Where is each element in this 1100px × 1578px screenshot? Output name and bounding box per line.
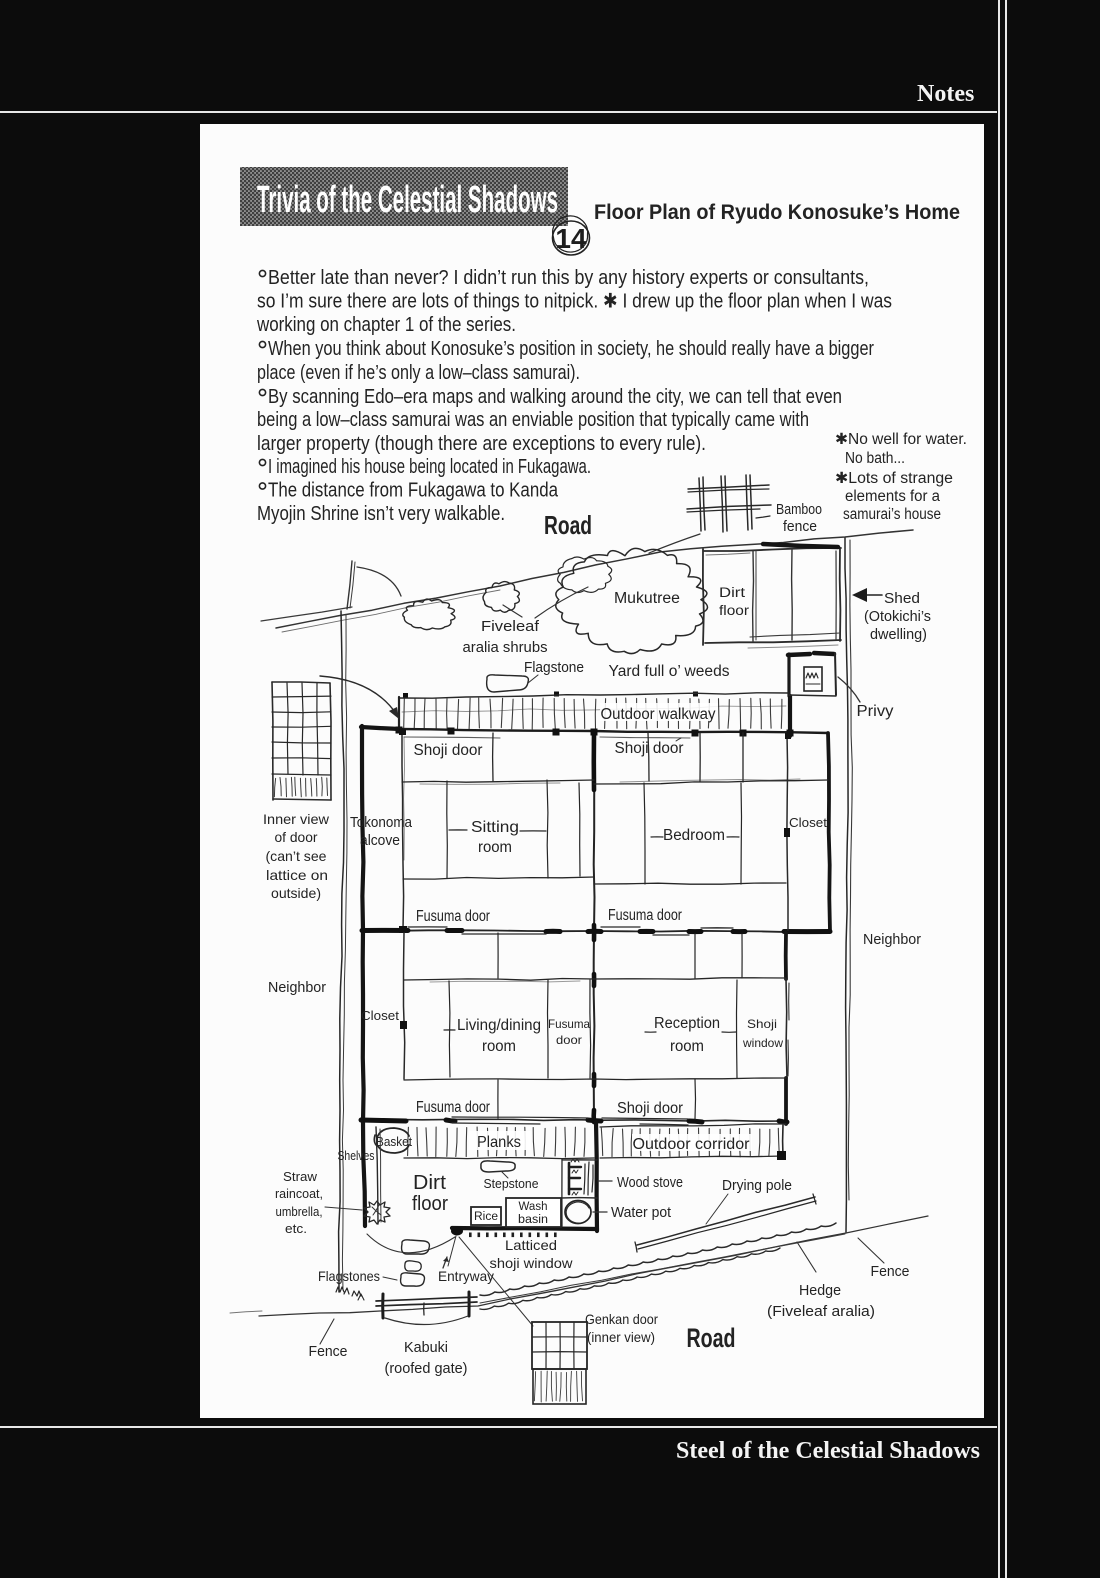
- svg-text:Kabuki: Kabuki: [404, 1339, 448, 1356]
- svg-text:Straw: Straw: [283, 1170, 318, 1184]
- svg-text:Shoji door: Shoji door: [617, 1100, 683, 1117]
- svg-text:raincoat,: raincoat,: [275, 1187, 323, 1201]
- svg-text:larger property (though there: larger property (though there are except…: [257, 433, 706, 455]
- svg-text:alcove: alcove: [360, 833, 400, 849]
- svg-text:room: room: [482, 1038, 516, 1055]
- svg-text:Shoji: Shoji: [747, 1017, 777, 1031]
- svg-text:By scanning Edo–era maps and w: By scanning Edo–era maps and walking aro…: [268, 386, 842, 408]
- svg-text:Floor Plan of Ryudo Konosuke’s: Floor Plan of Ryudo Konosuke’s Home: [594, 200, 960, 224]
- svg-text:Sitting: Sitting: [471, 819, 519, 836]
- svg-text:Stepstone: Stepstone: [484, 1177, 539, 1191]
- svg-text:place (even if he’s only a low: place (even if he’s only a low–class sam…: [257, 362, 580, 384]
- svg-text:Dirt: Dirt: [719, 585, 745, 600]
- svg-text:Rice: Rice: [474, 1211, 498, 1223]
- svg-text:Outdoor corridor: Outdoor corridor: [633, 1136, 750, 1153]
- svg-text:Road: Road: [687, 1323, 736, 1353]
- svg-text:Neighbor: Neighbor: [268, 979, 326, 996]
- svg-text:14: 14: [555, 223, 587, 254]
- svg-text:Fusuma door: Fusuma door: [608, 907, 682, 924]
- svg-text:Neighbor: Neighbor: [863, 931, 921, 948]
- svg-text:lattice on: lattice on: [266, 867, 328, 883]
- svg-text:Bedroom: Bedroom: [663, 827, 725, 844]
- svg-text:Wood stove: Wood stove: [617, 1175, 683, 1191]
- svg-text:Road: Road: [544, 510, 592, 540]
- svg-text:Trivia of the Celestial Shadow: Trivia of the Celestial Shadows: [257, 179, 558, 221]
- svg-text:Closet: Closet: [361, 1008, 399, 1023]
- svg-text:elements for a: elements for a: [845, 488, 940, 505]
- svg-text:When you think about Konosuke’: When you think about Konosuke’s position…: [268, 338, 874, 360]
- svg-text:Privy: Privy: [857, 703, 894, 720]
- svg-text:(Fiveleaf aralia): (Fiveleaf aralia): [767, 1303, 875, 1320]
- svg-text:Fusuma door: Fusuma door: [416, 908, 490, 925]
- svg-text:samurai’s house: samurai’s house: [843, 506, 941, 523]
- svg-text:Flagstone: Flagstone: [524, 660, 584, 676]
- svg-text:umbrella,: umbrella,: [276, 1205, 323, 1219]
- svg-text:Inner view: Inner view: [263, 811, 330, 827]
- svg-text:shoji window: shoji window: [490, 1255, 574, 1271]
- svg-text:Yard full o’ weeds: Yard full o’ weeds: [609, 663, 730, 680]
- svg-text:Myojin Shrine isn’t very walka: Myojin Shrine isn’t very walkable.: [257, 503, 505, 525]
- svg-text:Drying pole: Drying pole: [722, 1177, 792, 1194]
- svg-text:(can’t see: (can’t see: [266, 848, 327, 864]
- svg-text:being a low–class samurai was: being a low–class samurai was an enviabl…: [257, 409, 809, 431]
- svg-text:of door: of door: [275, 829, 318, 845]
- svg-text:Shoji door: Shoji door: [414, 742, 483, 759]
- svg-text:room: room: [670, 1038, 704, 1055]
- svg-text:Basket: Basket: [376, 1135, 412, 1149]
- svg-text:Closet: Closet: [789, 815, 827, 830]
- svg-text:so I’m sure there are lots of: so I’m sure there are lots of things to …: [257, 291, 892, 313]
- svg-text:Fence: Fence: [871, 1263, 910, 1280]
- svg-text:etc.: etc.: [285, 1222, 307, 1236]
- svg-text:working on chapter 1 of the se: working on chapter 1 of the series.: [256, 314, 516, 336]
- svg-text:Better late than never? I didn: Better late than never? I didn’t run thi…: [268, 267, 869, 289]
- svg-text:Shelves: Shelves: [338, 1149, 375, 1163]
- svg-text:Dirt: Dirt: [413, 1172, 446, 1194]
- svg-text:Shed: Shed: [884, 590, 920, 607]
- svg-text:Living/dining: Living/dining: [457, 1017, 541, 1034]
- svg-text:outside): outside): [271, 885, 321, 901]
- svg-text:No bath...: No bath...: [845, 450, 905, 467]
- svg-text:window: window: [742, 1036, 783, 1050]
- svg-text:floor: floor: [719, 603, 750, 618]
- svg-text:fence: fence: [783, 519, 817, 535]
- svg-text:Fiveleaf: Fiveleaf: [481, 619, 540, 635]
- svg-text:(roofed gate): (roofed gate): [385, 1360, 468, 1377]
- svg-text:(inner view): (inner view): [587, 1329, 655, 1345]
- svg-text:Fusuma: Fusuma: [548, 1017, 590, 1031]
- svg-text:floor: floor: [412, 1193, 448, 1215]
- svg-text:Fusuma door: Fusuma door: [416, 1099, 490, 1116]
- svg-text:Latticed: Latticed: [505, 1237, 557, 1253]
- svg-text:Water pot: Water pot: [611, 1205, 671, 1221]
- svg-text:Mukutree: Mukutree: [614, 590, 680, 607]
- svg-text:✱Lots of strange: ✱Lots of strange: [835, 470, 953, 487]
- svg-text:Wash: Wash: [519, 1201, 548, 1213]
- svg-text:Shoji door: Shoji door: [615, 740, 684, 757]
- svg-text:Fence: Fence: [309, 1343, 348, 1360]
- svg-text:(Otokichi’s: (Otokichi’s: [864, 609, 931, 625]
- svg-text:Entryway: Entryway: [438, 1268, 494, 1284]
- svg-text:basin: basin: [518, 1214, 548, 1226]
- svg-text:Hedge: Hedge: [799, 1282, 841, 1299]
- svg-text:door: door: [556, 1033, 582, 1047]
- svg-text:room: room: [478, 839, 512, 856]
- svg-text:Planks: Planks: [477, 1134, 521, 1151]
- svg-text:Bamboo: Bamboo: [776, 502, 822, 518]
- svg-text:aralia shrubs: aralia shrubs: [463, 640, 548, 656]
- svg-text:The distance from Fukagawa to: The distance from Fukagawa to Kanda: [268, 480, 559, 502]
- svg-text:Flagstones: Flagstones: [318, 1268, 380, 1284]
- svg-text:dwelling): dwelling): [870, 627, 927, 643]
- svg-text:Outdoor walkway: Outdoor walkway: [601, 706, 716, 723]
- svg-text:I imagined his house being loc: I imagined his house being located in Fu…: [268, 456, 591, 478]
- svg-text:✱No well for water.: ✱No well for water.: [835, 431, 967, 448]
- svg-text:Genkan door: Genkan door: [585, 1311, 658, 1327]
- svg-text:Reception: Reception: [654, 1015, 720, 1032]
- svg-text:Tokonoma: Tokonoma: [350, 815, 413, 831]
